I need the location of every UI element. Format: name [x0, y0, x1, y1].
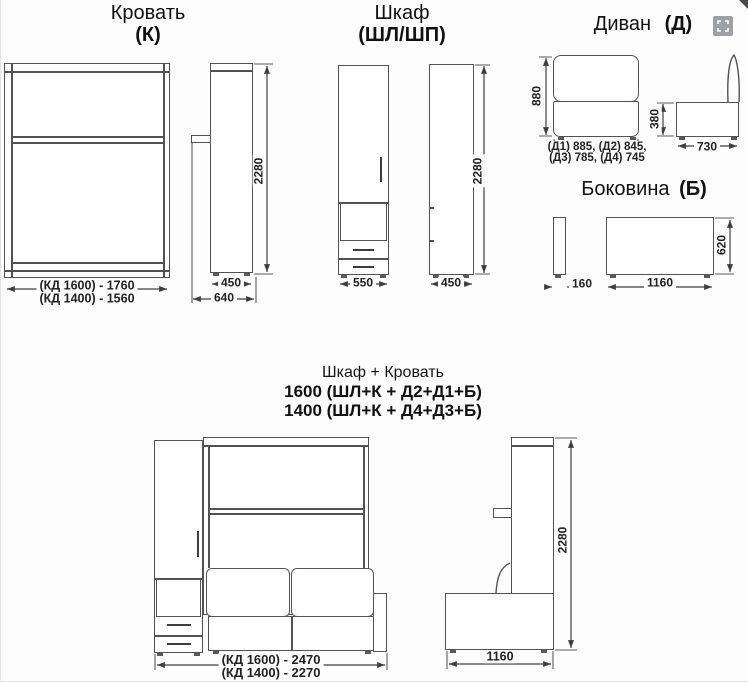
bed-front-outline	[4, 63, 170, 278]
combo-side-foot-left	[450, 650, 456, 653]
sofa-side-seat-height-dim: 380	[649, 106, 662, 132]
wardrobe-front-foot-right	[380, 275, 386, 278]
combo-side-depth-dim: 1160	[483, 650, 516, 663]
wardrobe-front-shelf-box	[340, 203, 387, 241]
bed-side-depth-inner-dim: 450	[218, 277, 244, 290]
combo-side-panel-edge	[373, 593, 387, 652]
bed-front-top-band-line	[5, 71, 169, 73]
sofa-front-foot-right	[630, 137, 636, 140]
side-panel-foot-left	[610, 275, 616, 278]
side-panel-code-text: (Б)	[679, 178, 707, 200]
combo-variant-1600: 1600 (ШЛ+К + Д2+Д1+Б)	[233, 382, 533, 401]
bed-side-top-band-line	[211, 70, 252, 72]
combo-sofa-foot-right	[365, 651, 371, 654]
expand-icon[interactable]	[713, 16, 733, 36]
wardrobe-side-outline	[429, 64, 474, 275]
combo-title-text: Шкаф + Кровать	[233, 363, 533, 382]
wardrobe-section-title: Шкаф (ШЛ/ШП)	[302, 2, 502, 46]
sofa-side-backrest-curve	[728, 55, 740, 102]
sofa-side-depth-dim: 730	[694, 141, 720, 154]
combo-wardrobe-drawer-divider	[155, 635, 202, 637]
wardrobe-front-door-handle	[380, 157, 382, 182]
sofa-front-height-dim: 880	[531, 83, 544, 109]
side-panel-face-view	[606, 217, 714, 275]
sofa-front-foot-left	[558, 137, 564, 140]
side-panel-section-title: Боковина (Б)	[544, 178, 744, 200]
combo-front-width-dim-1400: (КД 1400) - 2270	[219, 666, 324, 680]
combo-bed-mid-line-1	[209, 508, 363, 510]
side-panel-edge-foot	[555, 275, 561, 278]
sofa-side-foot-left	[679, 137, 685, 140]
combo-section-title: Шкаф + Кровать 1600 (ШЛ+К + Д2+Д1+Б) 140…	[233, 363, 533, 420]
combo-wardrobe-drawer2-handle	[167, 643, 191, 645]
combo-wardrobe-door-handle	[197, 531, 199, 557]
bed-side-outline	[210, 63, 253, 273]
sofa-side-seat	[676, 102, 739, 137]
combo-sofa-seat-seam	[291, 617, 293, 650]
bed-front-mid-line-1	[12, 136, 163, 138]
combo-side-height-dim: 2280	[557, 524, 570, 557]
combo-side-backrest-curve	[496, 563, 510, 593]
sofa-front-backrest	[553, 55, 639, 102]
bed-side-foot-right	[244, 273, 250, 276]
combo-wardrobe-foot-left	[157, 653, 163, 656]
combo-bed-top-band-line	[204, 445, 368, 447]
bed-front-bottom-line-1	[12, 262, 163, 264]
bed-front-mid-line-2	[12, 142, 163, 144]
combo-wardrobe-drawer1-handle	[167, 624, 191, 626]
combo-side-top-band-line	[512, 445, 553, 447]
wardrobe-title-text: Шкаф	[302, 2, 502, 24]
expand-icon-glyph	[713, 16, 733, 36]
combo-bed-right-rail	[363, 446, 365, 568]
combo-sofa-back-cushion-right	[291, 568, 374, 617]
side-panel-height-dim: 620	[716, 232, 729, 258]
wardrobe-front-foot-left	[341, 275, 347, 278]
sofa-side-foot-right	[731, 137, 737, 140]
sofa-code-text: (Д)	[665, 13, 693, 35]
bed-front-bottom-line-2	[5, 270, 169, 272]
combo-side-shelf-ledge	[493, 508, 512, 518]
combo-wardrobe-shelf-box	[156, 579, 201, 617]
furniture-dimensions-diagram: Кровать (К) Шкаф (ШЛ/ШП) Диван (Д) Боков…	[0, 0, 748, 682]
sofa-title-text: Диван	[594, 13, 651, 35]
combo-bed-mid-line-2	[209, 513, 363, 515]
sofa-front-widths-dim-2: (Д3) 785, (Д4) 745	[546, 152, 648, 164]
bed-side-depth-outer-dim: 640	[211, 292, 237, 305]
wardrobe-side-seam-2	[429, 240, 434, 242]
side-panel-edge-view	[553, 217, 566, 275]
side-panel-length-dim: 1160	[644, 277, 676, 290]
combo-bed-left-rail	[208, 446, 210, 568]
side-panel-foot-right	[704, 275, 710, 278]
bed-code-text: (К)	[48, 24, 248, 46]
sofa-front-seat	[553, 101, 639, 137]
combo-wardrobe-outline	[154, 440, 203, 653]
bed-side-foot-left	[213, 273, 219, 276]
bed-front-left-rail	[11, 64, 13, 277]
wardrobe-side-depth-dim: 450	[438, 277, 464, 290]
bed-side-shelf-ledge	[191, 135, 211, 143]
page-corner-mark	[739, 0, 748, 10]
combo-side-foot-right	[541, 650, 547, 653]
wardrobe-side-seam-1	[429, 207, 434, 209]
side-panel-thickness-dim: 160	[569, 278, 595, 291]
combo-side-seat-box	[445, 593, 554, 650]
wardrobe-front-drawer-divider	[339, 258, 388, 260]
bed-side-height-dim: 2280	[253, 155, 266, 188]
combo-sofa-back-cushion-left	[206, 568, 290, 617]
wardrobe-front-drawer1-handle	[353, 249, 374, 251]
side-panel-title-text: Боковина	[581, 178, 669, 200]
bed-title-text: Кровать	[48, 2, 248, 24]
bed-front-width-dim-1400: (КД 1400) - 1560	[36, 292, 137, 305]
combo-wardrobe-foot-right	[194, 653, 200, 656]
wardrobe-side-height-dim: 2280	[472, 155, 485, 188]
wardrobe-front-drawer2-handle	[353, 266, 374, 268]
wardrobe-front-width-dim: 550	[350, 277, 376, 290]
wardrobe-code-text: (ШЛ/ШП)	[302, 24, 502, 46]
bed-front-right-rail	[163, 64, 165, 277]
bed-section-title: Кровать (К)	[48, 2, 248, 46]
combo-variant-1400: 1400 (ШЛ+К + Д4+Д3+Б)	[233, 401, 533, 420]
